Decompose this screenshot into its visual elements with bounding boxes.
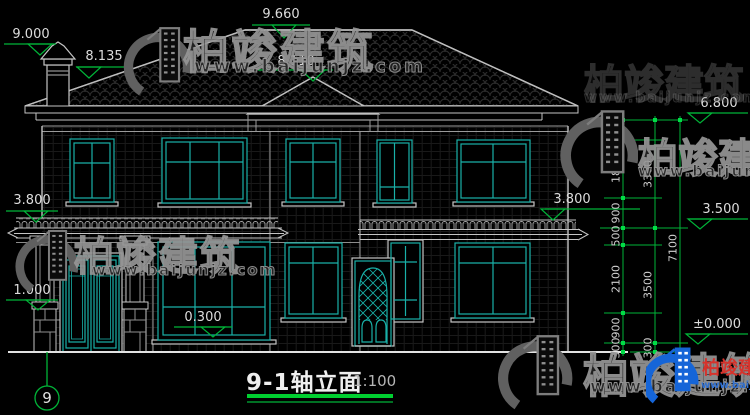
dim-300-b: 300 xyxy=(642,338,655,359)
elevation-label-annex-eave: 3.800 xyxy=(553,192,590,207)
dim-3300: 3300 xyxy=(642,160,655,188)
elevation-label-roof-left: 8.135 xyxy=(85,49,122,64)
elevation-label-ridge: 9.660 xyxy=(262,7,299,22)
dim-900-a: 900 xyxy=(610,203,623,224)
elevation-label-pedestal: 1.000 xyxy=(13,283,50,298)
elevation-label-bay-hip: 8.110 xyxy=(277,54,314,69)
dim-500: 500 xyxy=(610,226,623,247)
dim-900-b: 900 xyxy=(610,318,623,339)
elevation-label-eave: 6.800 xyxy=(700,96,737,111)
window-2f-4 xyxy=(373,140,416,207)
dim-300-a: 300 xyxy=(610,338,623,359)
window-2f-2 xyxy=(158,138,251,207)
window-2f-3 xyxy=(282,139,344,206)
window-2f-5 xyxy=(453,140,534,206)
elevation-label-second-floor: 3.500 xyxy=(702,202,739,217)
drawing-scale: 1:100 xyxy=(353,372,396,390)
window-1f-middle xyxy=(281,243,346,322)
dim-7100: 7100 xyxy=(667,234,680,262)
dim-3500: 3500 xyxy=(642,271,655,299)
elevation-label-porch-roof: 3.800 xyxy=(13,193,50,208)
porch-double-door xyxy=(60,253,122,352)
elevation-label-chimney-top: 9.000 xyxy=(12,27,49,42)
elevation-label-first-floor: 0.300 xyxy=(184,310,221,325)
dim-1800: 1800 xyxy=(610,155,623,183)
dim-600: 600 xyxy=(610,120,623,141)
window-1f-left xyxy=(152,242,276,344)
window-1f-right xyxy=(451,243,534,322)
axis-number: 9 xyxy=(42,389,52,407)
window-2f-1 xyxy=(66,139,118,206)
cad-elevation-screenshot: 9.660 8.110 9.000 8.135 6.800 3.500 ±0.0… xyxy=(0,0,750,415)
drawing-title: 9-1轴立面 xyxy=(246,363,363,397)
dim-2100: 2100 xyxy=(610,265,623,293)
elevation-label-ground: ±0.000 xyxy=(693,317,741,332)
